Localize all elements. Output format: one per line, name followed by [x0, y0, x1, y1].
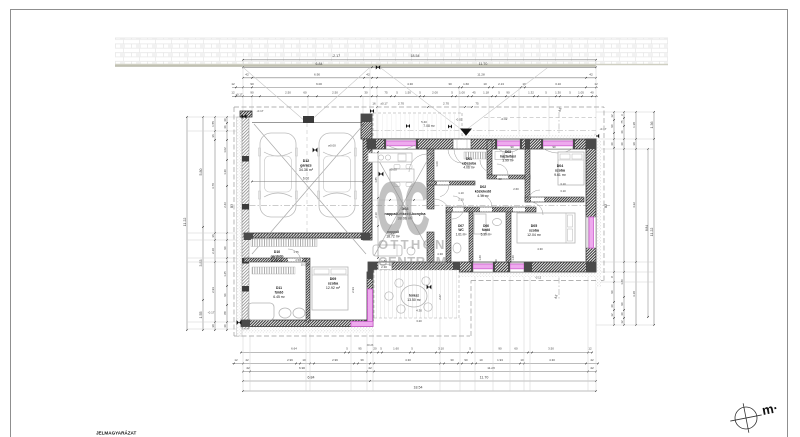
svg-text:1.60: 1.60: [463, 82, 469, 86]
svg-text:2.96: 2.96: [287, 358, 293, 362]
svg-text:90: 90: [510, 145, 514, 149]
svg-text:2.96: 2.96: [332, 358, 338, 362]
svg-text:szoba: szoba: [555, 169, 565, 173]
svg-text:30: 30: [448, 82, 452, 86]
svg-text:2.60: 2.60: [513, 187, 519, 191]
svg-text:1.55: 1.55: [199, 312, 203, 319]
svg-text:±0.17: ±0.17: [380, 102, 388, 106]
svg-text:2.93: 2.93: [351, 287, 355, 293]
svg-text:90: 90: [610, 290, 614, 294]
svg-text:12: 12: [620, 320, 624, 324]
svg-text:-0.17: -0.17: [208, 311, 215, 315]
svg-text:30: 30: [211, 324, 215, 328]
svg-text:fürdő: fürdő: [275, 290, 284, 294]
svg-text:4.30: 4.30: [416, 309, 422, 313]
svg-text:4.30: 4.30: [407, 82, 413, 86]
svg-text:30: 30: [450, 358, 454, 362]
svg-text:6.20 m²: 6.20 m²: [271, 259, 283, 263]
svg-text:1.75: 1.75: [293, 250, 299, 254]
svg-text:1.38: 1.38: [632, 122, 636, 128]
svg-text:3.18: 3.18: [632, 291, 636, 297]
svg-text:42: 42: [245, 358, 249, 362]
svg-text:-0.02: -0.02: [501, 117, 508, 121]
svg-text:12.04 m²: 12.04 m²: [527, 233, 542, 237]
svg-text:12: 12: [231, 91, 235, 95]
svg-text:20: 20: [373, 347, 377, 351]
svg-text:1.40: 1.40: [478, 255, 482, 261]
svg-text:terasz: terasz: [409, 294, 419, 298]
svg-text:2.13: 2.13: [498, 82, 504, 86]
svg-text:6.00: 6.00: [303, 177, 309, 181]
svg-text:10: 10: [520, 358, 524, 362]
svg-text:7.08 m²: 7.08 m²: [423, 124, 435, 128]
svg-text:2.67: 2.67: [438, 294, 442, 300]
svg-text:30: 30: [610, 142, 614, 146]
svg-text:30: 30: [223, 324, 227, 328]
svg-text:6.64: 6.64: [291, 347, 297, 351]
svg-text:88: 88: [223, 311, 227, 315]
svg-text:D05: D05: [531, 224, 537, 228]
svg-text:34.36 m²: 34.36 m²: [299, 168, 314, 172]
svg-text:11.70: 11.70: [480, 375, 489, 379]
svg-text:75: 75: [384, 91, 388, 95]
svg-text:13.50 m²: 13.50 m²: [407, 298, 421, 302]
svg-text:4.30: 4.30: [549, 358, 555, 362]
svg-text:1.00: 1.00: [459, 91, 465, 95]
svg-text:1.55: 1.55: [211, 121, 215, 127]
svg-text:75: 75: [620, 120, 624, 124]
svg-text:3.83: 3.83: [199, 260, 203, 267]
svg-text:±0.17: ±0.17: [236, 93, 243, 97]
svg-text:-0.17: -0.17: [257, 109, 264, 113]
svg-text:60: 60: [498, 177, 502, 181]
svg-text:m·: m·: [761, 400, 779, 418]
svg-text:4.30: 4.30: [537, 247, 543, 251]
svg-text:18.54: 18.54: [414, 385, 423, 389]
svg-text:45: 45: [472, 91, 476, 95]
svg-text:D10: D10: [274, 250, 280, 254]
svg-text:6.84: 6.84: [308, 375, 315, 379]
svg-text:1.36: 1.36: [650, 122, 654, 129]
svg-text:30: 30: [364, 91, 368, 95]
svg-text:3.10: 3.10: [555, 82, 561, 86]
svg-text:90: 90: [610, 124, 614, 128]
svg-text:4.16 m²: 4.16 m²: [477, 194, 489, 198]
svg-text:6.90: 6.90: [299, 366, 305, 370]
svg-text:6.00: 6.00: [316, 82, 322, 86]
svg-text:12: 12: [234, 358, 238, 362]
svg-text:60: 60: [303, 91, 307, 95]
svg-text:6.45 m²: 6.45 m²: [273, 295, 285, 299]
svg-text:42: 42: [589, 73, 593, 77]
svg-text:42: 42: [246, 366, 250, 370]
svg-text:10: 10: [302, 358, 306, 362]
svg-text:12: 12: [610, 114, 614, 118]
svg-text:36: 36: [223, 125, 227, 129]
svg-text:75: 75: [475, 102, 479, 106]
svg-text:1.30: 1.30: [555, 91, 561, 95]
svg-text:90: 90: [223, 246, 227, 250]
svg-text:3.10: 3.10: [438, 347, 444, 351]
svg-text:1.40: 1.40: [511, 255, 515, 261]
svg-text:1.10: 1.10: [458, 191, 464, 195]
svg-text:40: 40: [590, 91, 594, 95]
svg-text:1.25: 1.25: [223, 271, 227, 277]
svg-text:30: 30: [620, 142, 624, 146]
svg-text:12: 12: [610, 313, 614, 317]
svg-text:1.05: 1.05: [578, 91, 584, 95]
svg-text:2.43: 2.43: [223, 202, 227, 208]
svg-text:-0.02: -0.02: [456, 118, 463, 122]
svg-text:D12: D12: [303, 159, 310, 163]
svg-text:3.20: 3.20: [416, 319, 422, 323]
svg-text:1.00: 1.00: [435, 161, 439, 167]
svg-text:30: 30: [610, 304, 614, 308]
svg-text:4.22: 4.22: [632, 202, 636, 208]
svg-text:36: 36: [211, 234, 215, 238]
svg-text:1.02: 1.02: [223, 147, 227, 153]
svg-text:10 1.18: 10 1.18: [301, 264, 310, 267]
svg-text:2.70: 2.70: [443, 102, 449, 106]
svg-text:1.61 m²: 1.61 m²: [456, 232, 467, 236]
svg-text:B3: B3: [604, 204, 608, 208]
svg-text:6.84: 6.84: [316, 62, 323, 66]
svg-text:30: 30: [632, 142, 636, 146]
svg-text:ø0.00: ø0.00: [328, 144, 336, 148]
svg-text:1.50: 1.50: [405, 91, 411, 95]
svg-text:CENTRUM: CENTRUM: [378, 254, 447, 269]
svg-text:D02: D02: [480, 185, 486, 189]
svg-text:90: 90: [464, 358, 468, 362]
svg-text:10: 10: [479, 358, 483, 362]
svg-text:9.61 m²: 9.61 m²: [554, 173, 567, 177]
svg-text:90: 90: [552, 145, 556, 149]
svg-text:B3: B3: [230, 204, 234, 208]
svg-text:JELMAGYARÁZAT: JELMAGYARÁZAT: [96, 430, 137, 436]
svg-text:18.54: 18.54: [411, 54, 420, 58]
svg-text:6.90: 6.90: [314, 73, 320, 77]
svg-text:8.84: 8.84: [645, 225, 649, 231]
svg-text:2.10: 2.10: [211, 248, 215, 254]
svg-text:11.22: 11.22: [183, 218, 187, 227]
svg-text:szoba: szoba: [328, 282, 339, 286]
svg-text:1.75: 1.75: [335, 232, 341, 236]
svg-text:90: 90: [494, 259, 498, 262]
svg-text:1.30: 1.30: [223, 169, 227, 175]
svg-text:D09: D09: [330, 277, 337, 281]
svg-text:36: 36: [211, 134, 215, 138]
svg-text:11.28: 11.28: [487, 366, 495, 370]
svg-text:-0.17: -0.17: [600, 127, 607, 131]
svg-text:12: 12: [588, 347, 592, 351]
svg-text:2.10: 2.10: [458, 198, 464, 202]
svg-text:39: 39: [360, 358, 364, 362]
svg-text:42: 42: [590, 366, 594, 370]
svg-text:42: 42: [590, 358, 594, 362]
svg-text:1.60: 1.60: [393, 347, 399, 351]
svg-text:3.10: 3.10: [560, 189, 566, 193]
svg-text:2.50: 2.50: [295, 258, 301, 262]
svg-text:12.92 m²: 12.92 m²: [326, 286, 341, 290]
svg-text:3.10: 3.10: [560, 182, 566, 186]
svg-text:4.06 m²: 4.06 m²: [463, 166, 475, 170]
svg-text:szoba: szoba: [529, 229, 539, 233]
svg-text:4.30: 4.30: [405, 358, 411, 362]
svg-text:gardrób: gardrób: [271, 254, 284, 258]
svg-text:95: 95: [358, 347, 362, 351]
svg-text:36: 36: [620, 130, 624, 134]
svg-text:1.32: 1.32: [528, 91, 534, 95]
svg-text:90: 90: [250, 82, 254, 86]
svg-text:42: 42: [245, 73, 249, 77]
svg-text:90: 90: [498, 347, 502, 351]
svg-text:1.18: 1.18: [483, 91, 489, 95]
svg-text:42: 42: [368, 366, 372, 370]
svg-text:11.70: 11.70: [479, 62, 488, 66]
svg-text:90: 90: [506, 91, 510, 95]
svg-text:90: 90: [620, 302, 624, 306]
svg-text:2.50: 2.50: [332, 91, 338, 95]
svg-text:1.93: 1.93: [497, 358, 503, 362]
svg-text:3.70: 3.70: [211, 183, 215, 189]
svg-text:közlekedő: közlekedő: [475, 189, 491, 193]
svg-text:90: 90: [250, 91, 254, 95]
svg-text:2.00: 2.00: [432, 91, 438, 95]
svg-text:OTTHON: OTTHON: [378, 237, 447, 252]
svg-text:11.28: 11.28: [477, 73, 485, 77]
svg-text:30: 30: [620, 312, 624, 316]
svg-text:2.70: 2.70: [398, 102, 404, 106]
svg-text:60: 60: [514, 347, 518, 351]
svg-text:D11: D11: [276, 286, 282, 290]
svg-text:3.50: 3.50: [548, 347, 554, 351]
svg-text:D04: D04: [557, 164, 563, 168]
svg-text:garázs: garázs: [300, 164, 311, 168]
svg-text:16: 16: [372, 102, 376, 106]
svg-text:12: 12: [231, 82, 235, 86]
svg-text:2.93: 2.93: [211, 287, 215, 293]
svg-text:-2.17: -2.17: [332, 54, 340, 58]
svg-text:96: 96: [223, 293, 227, 297]
svg-text:2.50: 2.50: [285, 91, 291, 95]
svg-text:2.95: 2.95: [278, 232, 284, 236]
svg-text:3.99 m²: 3.99 m²: [502, 159, 514, 163]
svg-text:11.22: 11.22: [650, 228, 654, 237]
svg-text:-0.12: -0.12: [535, 275, 542, 279]
svg-text:10: 10: [483, 82, 487, 86]
svg-text:5.80: 5.80: [199, 169, 203, 176]
svg-text:42: 42: [366, 73, 370, 77]
svg-text:5.39 m²: 5.39 m²: [481, 232, 492, 236]
svg-text:30: 30: [223, 118, 227, 122]
